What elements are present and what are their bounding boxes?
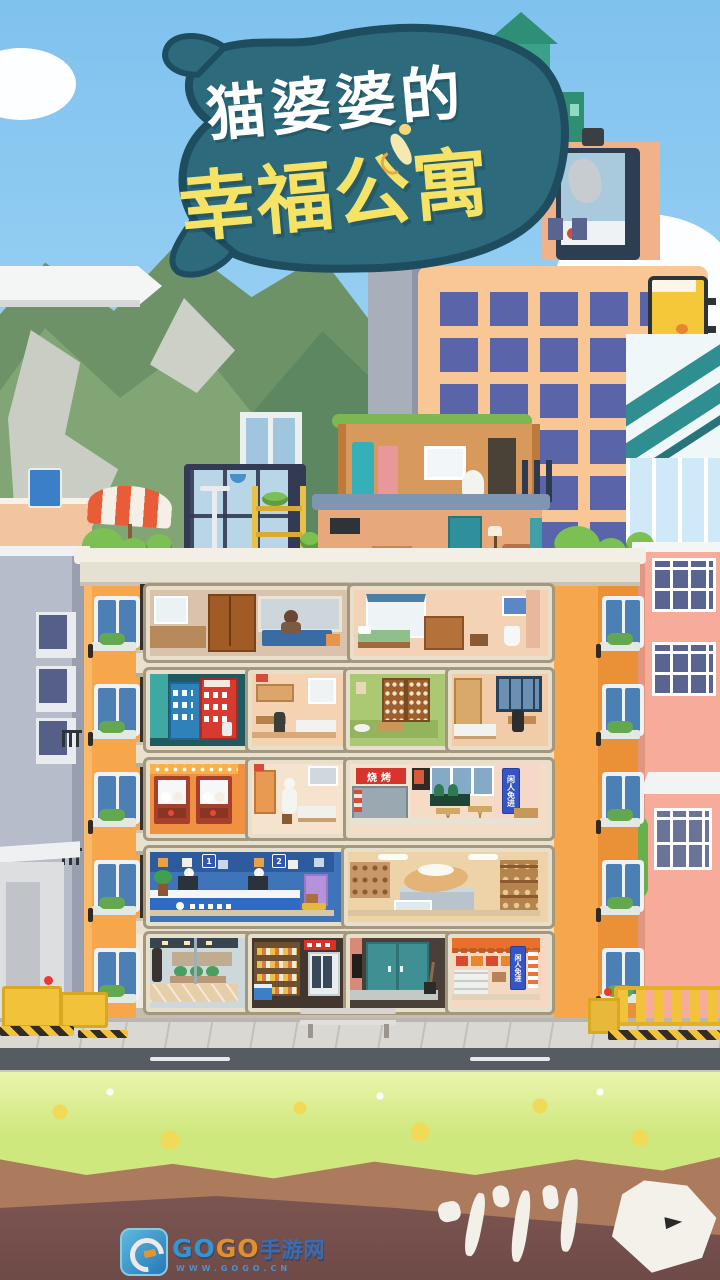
white-shelf <box>454 970 488 996</box>
penthouse-roof <box>312 494 550 510</box>
penthouse-upper <box>338 424 540 502</box>
cabinet <box>424 616 464 650</box>
window <box>36 666 76 712</box>
floor-lamp <box>488 526 502 536</box>
pet-bed <box>462 470 484 496</box>
floor <box>252 732 336 738</box>
back-counter <box>172 952 232 966</box>
window <box>308 766 338 786</box>
hazard-stripe <box>0 1026 74 1036</box>
bench-back <box>300 1008 396 1014</box>
room-corner-shop: 闲人免进 <box>448 934 552 1012</box>
vending-machine-blue <box>169 682 201 740</box>
balcony-rail <box>62 730 82 747</box>
pane <box>39 615 67 649</box>
fish-bone <box>558 1187 580 1252</box>
counter-top <box>150 890 300 898</box>
sign-foam <box>652 280 696 292</box>
fridge-door <box>323 956 332 988</box>
pink-cabinet <box>378 446 398 498</box>
road-dash <box>150 1057 230 1061</box>
window-6pane <box>652 642 716 696</box>
shelf-row <box>173 702 193 708</box>
road-dash <box>470 1057 550 1061</box>
claw-button <box>210 810 216 816</box>
pillow <box>358 626 371 634</box>
road <box>0 1048 720 1070</box>
flour-top <box>418 864 454 876</box>
barrier-panel <box>588 998 620 1034</box>
right-awning <box>640 772 720 794</box>
kitchen-window <box>154 596 188 624</box>
bench-seat <box>300 1020 396 1025</box>
window-planter <box>92 730 136 739</box>
teal-wall <box>150 674 168 738</box>
shelf-band <box>150 852 334 872</box>
menu-strip <box>528 950 538 988</box>
bench-leg <box>384 1024 389 1038</box>
claw-machine <box>154 776 190 824</box>
dark-panel <box>352 954 362 978</box>
kitchen-counter <box>150 626 206 648</box>
pane <box>39 669 67 703</box>
room-vending-machines <box>146 670 250 750</box>
marquee <box>150 764 238 774</box>
plant <box>434 784 444 796</box>
vending-machine-red <box>200 678 238 740</box>
bbq-sign: 烧烤 <box>354 766 408 786</box>
trash-bin <box>222 722 232 736</box>
game-logo: 猫婆婆的 幸福公寓 <box>143 3 588 293</box>
low-table <box>378 722 404 732</box>
floor <box>452 994 540 1000</box>
room-bbq-restaurant: 烧烤 闲人免进 <box>346 760 552 838</box>
sign-marks <box>307 943 333 947</box>
pegboard <box>488 438 516 496</box>
goods-crates <box>456 956 468 966</box>
poster <box>414 770 424 784</box>
room-bank-office: 1 2 <box>146 848 346 926</box>
lattice-screen <box>382 678 406 722</box>
no-entry-banner: 闲人免进 <box>510 946 526 990</box>
person-body <box>281 622 301 634</box>
awning-bulbs <box>452 948 540 953</box>
claw-button <box>168 810 174 816</box>
billboard-mount <box>582 128 604 146</box>
room-apartment-502 <box>350 586 552 660</box>
tv <box>330 518 360 534</box>
room-convenience-store <box>248 934 348 1012</box>
glass-pane <box>273 418 295 470</box>
lattice-screen <box>406 678 430 722</box>
window-planter <box>600 906 640 915</box>
floor <box>150 910 334 916</box>
window-planter <box>600 818 640 827</box>
wall-shelf <box>256 684 294 702</box>
shelf-item <box>158 858 168 867</box>
watermark: GOGO手游网 WWW.GOGO.CN <box>120 1226 360 1280</box>
goods-row <box>257 961 297 968</box>
cat-head <box>399 124 412 136</box>
store-sign-red <box>304 940 336 950</box>
red-box <box>254 764 264 771</box>
office-chair <box>274 712 285 734</box>
tall-cabinet <box>254 770 276 814</box>
blue-signboard <box>28 468 62 508</box>
room-tatami <box>346 670 450 750</box>
drink-fridge <box>308 952 340 996</box>
wall-frame <box>356 682 366 694</box>
room-claw-arcade <box>146 760 250 838</box>
doorman-silhouette <box>152 948 162 982</box>
overpass-shadow <box>0 300 140 307</box>
no-entry-text: 闲人免进 <box>513 954 523 982</box>
monitor <box>248 876 268 890</box>
roof-slab-lower <box>80 562 640 586</box>
bbq-sign-text: 烧烤 <box>367 769 395 784</box>
monitor <box>178 876 198 890</box>
window-planter <box>600 642 640 651</box>
bread-shelf <box>500 860 538 910</box>
goods-row <box>257 974 297 981</box>
office-chair <box>512 710 524 732</box>
glass-mullion <box>194 938 197 984</box>
wardrobe-split <box>229 596 231 646</box>
window-dark <box>496 676 542 712</box>
fish-bone <box>491 1184 511 1208</box>
left-door <box>6 882 40 994</box>
fish-bone <box>509 1189 533 1262</box>
plush <box>203 792 213 802</box>
warning-lamp <box>44 976 53 985</box>
menu-strips <box>354 790 362 812</box>
window-planter <box>600 730 640 739</box>
red-basket <box>256 674 268 682</box>
tiled-floor <box>150 984 238 1002</box>
cat-mascot <box>383 124 415 174</box>
door-handle <box>388 966 391 972</box>
barrier-panel <box>60 992 108 1028</box>
fish-skull <box>606 1179 717 1275</box>
stool <box>282 814 292 824</box>
game-splash-screen[interactable]: 烧烤 闲人免进 1 2 <box>0 0 720 1280</box>
rung <box>256 532 302 537</box>
package-box <box>306 894 318 903</box>
cloud <box>0 48 76 120</box>
ceiling-lights <box>162 941 168 945</box>
planter-row <box>170 976 226 983</box>
window-planter <box>92 642 136 651</box>
toilet <box>504 626 520 646</box>
white-figure-body <box>282 788 297 814</box>
bed <box>454 724 496 739</box>
watermark-url: WWW.GOGO.CN <box>176 1264 291 1273</box>
ceiling-light <box>378 854 408 860</box>
barrier-panel <box>2 986 62 1028</box>
window-planter <box>92 818 136 827</box>
fish-bone <box>541 1184 559 1210</box>
watermark-go2: GO <box>216 1234 260 1263</box>
window-planter <box>92 906 136 915</box>
wardrobe <box>208 594 256 652</box>
cart <box>302 903 326 910</box>
room-apartment-501 <box>146 586 352 660</box>
carton-box <box>492 972 506 982</box>
bread-display <box>350 862 390 898</box>
fridge <box>352 442 374 498</box>
shelf-row <box>204 692 230 698</box>
machine-sign <box>204 680 230 687</box>
room-bedroom-blue-window <box>448 670 552 750</box>
watermark-title: GOGO手游网 <box>172 1234 362 1264</box>
window <box>424 446 466 480</box>
floor <box>350 818 540 826</box>
glass-pane <box>246 418 268 470</box>
wall-strip <box>526 590 540 648</box>
counter-logo <box>176 902 184 910</box>
window <box>308 678 336 704</box>
teller-1-text: 1 <box>206 857 212 866</box>
cooler-box <box>254 984 272 1000</box>
room-lobby <box>146 934 250 1012</box>
teller-2-text: 2 <box>276 857 282 866</box>
teller-number-1: 1 <box>202 854 216 868</box>
wall-art <box>502 596 528 616</box>
watermark-logo-icon <box>120 1228 168 1276</box>
plant-pot <box>158 884 168 896</box>
room-entrance-doors <box>346 934 450 1012</box>
bucket <box>424 982 436 994</box>
room-bakery <box>344 848 552 926</box>
palm-plant <box>154 870 172 884</box>
teal-door <box>366 942 398 996</box>
room-bedroom-cat <box>248 760 348 838</box>
window <box>36 612 76 658</box>
plush <box>161 792 171 802</box>
shelf-row <box>173 690 193 696</box>
counter-text <box>190 904 232 909</box>
orange-crate <box>326 634 340 646</box>
warning-lamp <box>604 988 612 996</box>
claw-machine <box>196 776 232 824</box>
fish-bone <box>436 1199 462 1223</box>
floor <box>348 910 540 916</box>
window-6pane <box>652 558 716 612</box>
fish-skeleton <box>428 1167 720 1280</box>
watermark-go1: GO <box>172 1234 216 1263</box>
window-6pane <box>654 808 712 870</box>
room-study-bedroom <box>248 670 348 750</box>
shelf-plant <box>262 492 288 506</box>
teller-number-2: 2 <box>272 854 286 868</box>
wardrobe <box>454 678 482 726</box>
no-entry-text: 闲人免进 <box>506 775 517 807</box>
barrier-fence <box>614 986 720 1026</box>
cat-bed <box>354 724 370 732</box>
fridge-door <box>312 956 321 988</box>
bench-leg <box>308 1024 313 1038</box>
poster-frame <box>412 768 430 790</box>
watermark-suffix: 手游网 <box>260 1238 326 1262</box>
bed <box>298 806 336 822</box>
rung <box>256 506 302 511</box>
side-table <box>470 634 488 646</box>
shelf-row <box>173 714 193 720</box>
hazard-stripe <box>78 1030 128 1038</box>
shelf-row <box>204 704 230 710</box>
sign-blob <box>676 324 688 334</box>
goods-row <box>257 948 297 955</box>
fish-bone <box>462 1192 488 1257</box>
hazard-stripe <box>608 1030 720 1040</box>
